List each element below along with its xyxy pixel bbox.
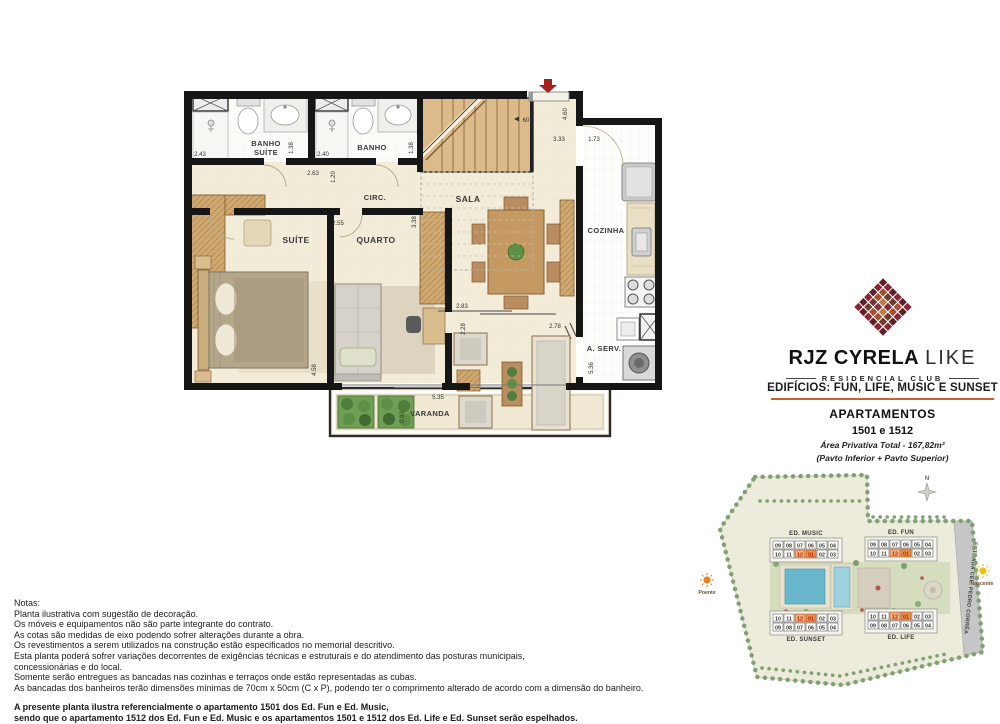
svg-text:3.33: 3.33 bbox=[553, 137, 565, 143]
svg-text:5.36: 5.36 bbox=[589, 362, 595, 374]
note-bold-line: sendo que o apartamento 1512 dos Ed. Fun… bbox=[14, 713, 989, 724]
unit-number: 06 bbox=[903, 542, 909, 548]
unit-number: 11 bbox=[881, 551, 887, 557]
suite-label: SUÍTE bbox=[282, 235, 309, 245]
brand-bold-text: RJZ CYRELA bbox=[789, 347, 920, 369]
unit-number: 07 bbox=[892, 542, 898, 548]
sun-east-label: Nascente bbox=[970, 581, 993, 587]
unit-number: 11 bbox=[786, 552, 792, 558]
note-line: As bancadas dos banheiros terão dimensõe… bbox=[14, 683, 989, 694]
unit-number: 12 bbox=[797, 552, 803, 558]
note-line: As cotas são medidas de eixo podendo sof… bbox=[14, 630, 989, 641]
note-line: Planta ilustrativa com sugestão de decor… bbox=[14, 609, 989, 620]
unit-number: 04 bbox=[925, 542, 931, 548]
banho-suite-label: BANHO bbox=[251, 139, 281, 148]
aserv-label: A. SERV. bbox=[587, 344, 621, 353]
entry-arrow-icon bbox=[539, 79, 557, 93]
note-line: concessionárias e do local. bbox=[14, 662, 989, 673]
svg-text:2.55: 2.55 bbox=[332, 221, 344, 227]
unit-number: 04 bbox=[830, 543, 836, 549]
svg-text:1.38: 1.38 bbox=[409, 142, 415, 154]
svg-text:2.63: 2.63 bbox=[307, 171, 319, 177]
unit-number: 08 bbox=[881, 542, 887, 548]
unit-number: 08 bbox=[786, 543, 792, 549]
svg-text:2.43: 2.43 bbox=[194, 152, 206, 158]
quarto-label: QUARTO bbox=[356, 235, 395, 245]
building-label: ED. MUSIC bbox=[789, 531, 823, 537]
floors-note: (Pavto Inferior + Pavto Superior) bbox=[765, 453, 1000, 463]
cyrela-logo-mark bbox=[852, 276, 914, 338]
svg-text:2.83: 2.83 bbox=[456, 304, 468, 310]
unit-number: 12 bbox=[892, 551, 898, 557]
svg-text:5.35: 5.35 bbox=[432, 395, 444, 401]
unit-number: 07 bbox=[797, 543, 803, 549]
svg-text:4.60: 4.60 bbox=[563, 108, 569, 120]
note-line: Somente serão entregues as bancadas nas … bbox=[14, 672, 989, 683]
varanda-label: VARANDA bbox=[410, 409, 450, 418]
private-area: Área Privativa Total - 167,82m² bbox=[765, 440, 1000, 450]
svg-text:2.40: 2.40 bbox=[317, 152, 329, 158]
subtitle-rule-right bbox=[949, 378, 979, 379]
unit-number: 02 bbox=[914, 551, 920, 557]
svg-text:0.93: 0.93 bbox=[400, 411, 406, 423]
entry-door bbox=[529, 92, 569, 101]
svg-text:1.20: 1.20 bbox=[331, 171, 337, 183]
cozinha-label: COZINHA bbox=[588, 226, 625, 235]
circ-label: CIRC. bbox=[364, 193, 386, 202]
unit-number: 09 bbox=[870, 542, 876, 548]
svg-text:1.73: 1.73 bbox=[588, 137, 600, 143]
svg-text:4.58: 4.58 bbox=[312, 364, 318, 376]
apartments-label: APARTAMENTOS bbox=[765, 407, 1000, 421]
notes-title: Notas: bbox=[14, 598, 989, 609]
svg-text:2.78: 2.78 bbox=[549, 324, 561, 330]
note-bold-line: A presente planta ilustra referencialmen… bbox=[14, 702, 989, 713]
unit-number: 05 bbox=[819, 543, 825, 549]
svg-text:2.28: 2.28 bbox=[461, 323, 467, 335]
svg-text:60: 60 bbox=[523, 118, 530, 124]
buildings-line: EDIFÍCIOS: FUN, LIFE, MUSIC E SUNSET bbox=[765, 382, 1000, 394]
sun-west-icon: Poente bbox=[698, 573, 715, 596]
floorplan-sheet: BANHO SUÍTE BANHO CIRC. SALA SUÍTE QUART… bbox=[0, 0, 1000, 707]
unit-number: 06 bbox=[808, 543, 814, 549]
banho-label: BANHO bbox=[357, 143, 387, 152]
buildings-underline bbox=[771, 398, 994, 400]
compass-n-label: N bbox=[925, 476, 929, 482]
svg-text:SUÍTE: SUÍTE bbox=[254, 148, 278, 157]
note-line: Os revestimentos a serem utilizados na c… bbox=[14, 640, 989, 651]
sala-label: SALA bbox=[456, 194, 481, 204]
logo-diamond-pattern bbox=[854, 278, 911, 335]
compass-icon: N bbox=[918, 476, 936, 501]
floor-plan: BANHO SUÍTE BANHO CIRC. SALA SUÍTE QUART… bbox=[180, 78, 680, 450]
unit-number: 01 bbox=[903, 551, 909, 557]
notes-lines: Planta ilustrativa com sugestão de decor… bbox=[14, 609, 989, 694]
note-line: Os móveis e equipamentos não são parte i… bbox=[14, 619, 989, 630]
brand-logo: RJZ CYRELALIKE RESIDENCIAL CLUB bbox=[765, 276, 1000, 383]
unit-number: 03 bbox=[925, 551, 931, 557]
unit-number: 09 bbox=[775, 543, 781, 549]
apartment-numbers: 1501 e 1512 bbox=[765, 425, 1000, 437]
unit-info: EDIFÍCIOS: FUN, LIFE, MUSIC E SUNSET APA… bbox=[765, 382, 1000, 463]
brand-name: RJZ CYRELALIKE bbox=[765, 347, 1000, 370]
unit-number: 10 bbox=[870, 551, 876, 557]
svg-text:1.38: 1.38 bbox=[289, 142, 295, 154]
unit-number: 01 bbox=[808, 552, 814, 558]
unit-number: 10 bbox=[775, 552, 781, 558]
building-label: ED. FUN bbox=[888, 530, 914, 536]
sun-west-label: Poente bbox=[698, 590, 715, 596]
unit-number: 02 bbox=[819, 552, 825, 558]
subtitle-rule-left bbox=[786, 378, 816, 379]
unit-number: 03 bbox=[830, 552, 836, 558]
svg-text:3.38: 3.38 bbox=[412, 216, 418, 228]
notes-bold: A presente planta ilustra referencialmen… bbox=[14, 702, 989, 723]
note-line: Esta planta poderá sofrer variações deco… bbox=[14, 651, 989, 662]
brand-light-text: LIKE bbox=[925, 347, 976, 369]
unit-number: 05 bbox=[914, 542, 920, 548]
notes-section: Notas: Planta ilustrativa com sugestão d… bbox=[14, 598, 989, 724]
